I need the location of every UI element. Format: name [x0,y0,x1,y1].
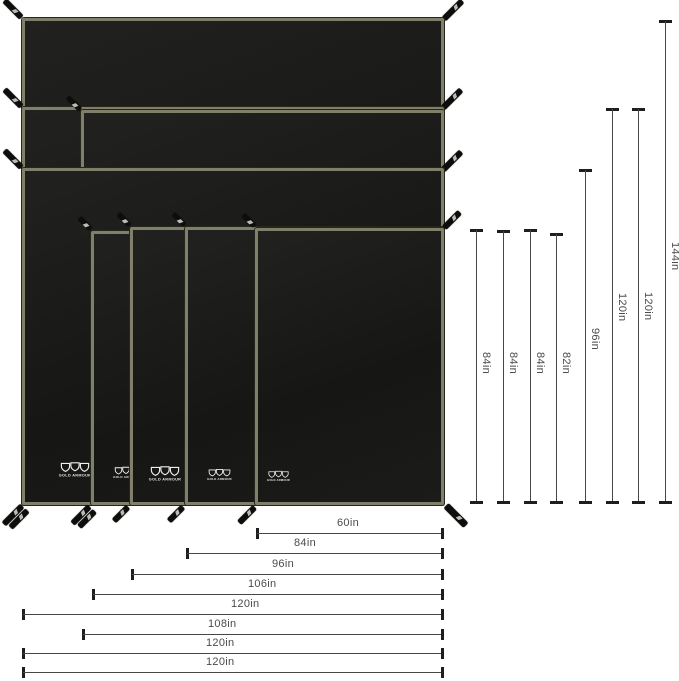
horizontal-dimension-8: 120in [22,667,444,678]
dimension-label: 120in [206,637,234,649]
dimension-line [612,109,613,503]
dimension-label: 82in [560,352,572,374]
dimension-label: 120in [642,292,654,320]
shield-logo-icon [61,463,88,472]
dimension-label: 84in [534,352,546,374]
dimension-tick [470,501,483,504]
brand-name-text: GOLD ARMOUR [267,478,290,482]
corner-strap [442,210,462,230]
dimension-line [187,553,443,554]
dimension-line [665,21,666,503]
dimension-line [503,231,504,503]
dimension-line [476,230,477,503]
dimension-tick [441,648,444,659]
brand-name-text: GOLD ARMOUR [59,473,91,477]
corner-strap [2,0,23,20]
product-dimension-diagram: GOLD ARMOUR GOLD ARMOUR GOLD ARMOUR [0,0,679,681]
shield-logo-icon [209,469,230,476]
corner-strap [112,505,130,523]
dimension-line [23,672,443,673]
shield-logo-icon [151,467,178,476]
vertical-dimension-8: 144in [659,20,672,504]
dimension-tick [659,501,672,504]
dimension-label: 96in [272,558,294,570]
gold-armour-logo: GOLD ARMOUR [205,468,234,481]
dimension-tick [441,629,444,640]
gold-armour-logo: GOLD ARMOUR [146,465,184,482]
vertical-dimension-3: 84in [524,229,537,504]
vertical-dimension-6: 120in [606,108,619,504]
dimension-label: 108in [208,618,236,630]
dimension-label: 120in [616,293,628,321]
vertical-dimension-2: 84in [497,230,510,504]
dimension-label: 84in [480,352,492,374]
dimension-tick [441,589,444,600]
corner-strap [2,148,23,169]
corner-strap [444,503,469,528]
dimension-line [93,594,443,595]
dimension-label: 120in [206,656,234,668]
dimension-line [556,234,557,503]
dimension-tick [441,548,444,559]
dimension-label: 106in [248,578,276,590]
dimension-line [257,533,443,534]
dimension-tick [524,501,537,504]
horizontal-dimension-4: 106in [92,589,444,600]
vertical-dimension-5: 96in [579,169,592,504]
dimension-line [585,170,586,503]
dimension-tick [497,501,510,504]
dimension-tick [550,501,563,504]
dimension-label: 120in [231,598,259,610]
gold-armour-logo: GOLD ARMOUR [56,461,94,478]
vertical-dimension-1: 84in [470,229,483,504]
dimension-label: 60in [337,517,359,529]
corner-strap [441,150,464,173]
shield-logo-icon [269,471,288,477]
horizontal-dimension-3: 96in [131,569,444,580]
horizontal-dimension-6: 108in [82,629,444,640]
gold-armour-logo: GOLD ARMOUR [265,470,292,482]
corner-strap [441,88,464,111]
dimension-line [132,574,443,575]
brand-name-text: GOLD ARMOUR [149,477,181,481]
corner-strap [442,0,465,21]
corner-strap [167,505,185,523]
tarp-60x84: GOLD ARMOUR [255,228,444,505]
dimension-tick [632,501,645,504]
dimension-tick [441,609,444,620]
vertical-dimension-7: 120in [632,108,645,504]
horizontal-dimension-2: 84in [186,548,444,559]
dimension-label: 96in [589,328,601,350]
dimension-line [638,109,639,503]
dimension-line [530,230,531,503]
dimension-tick [606,501,619,504]
dimension-line [23,614,443,615]
dimension-label: 84in [294,537,316,549]
brand-name-text: GOLD ARMOUR [207,477,232,481]
horizontal-dimension-1: 60in [256,528,444,539]
dimension-tick [579,501,592,504]
corner-strap [237,505,257,525]
dimension-tick [441,528,444,539]
dimension-label: 144in [669,242,679,270]
dimension-tick [441,667,444,678]
dimension-line [23,653,443,654]
corner-strap [2,87,23,108]
vertical-dimension-4: 82in [550,233,563,504]
dimension-tick [441,569,444,580]
dimension-label: 84in [507,352,519,374]
dimension-line [83,634,443,635]
